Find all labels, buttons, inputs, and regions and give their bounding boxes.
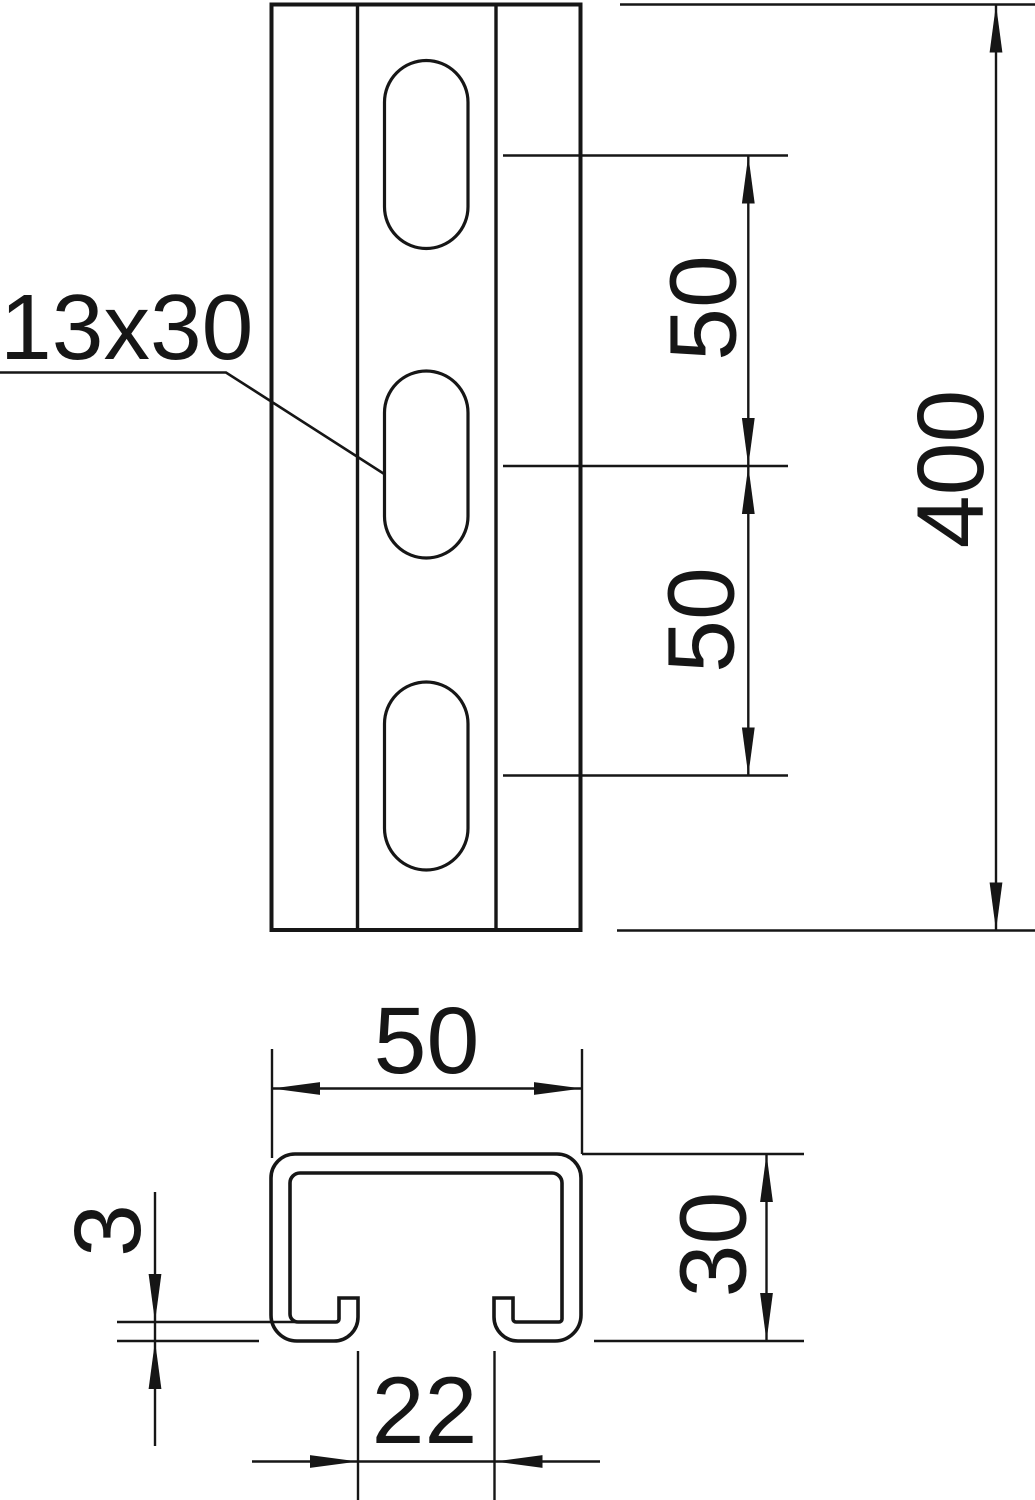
svg-text:50: 50 xyxy=(374,988,480,1094)
svg-text:50: 50 xyxy=(649,567,755,673)
svg-text:3: 3 xyxy=(55,1204,161,1257)
svg-text:30: 30 xyxy=(661,1192,767,1298)
svg-text:50: 50 xyxy=(651,255,757,361)
svg-text:13x30: 13x30 xyxy=(0,275,253,379)
svg-text:400: 400 xyxy=(898,390,1004,549)
svg-text:22: 22 xyxy=(372,1358,478,1464)
